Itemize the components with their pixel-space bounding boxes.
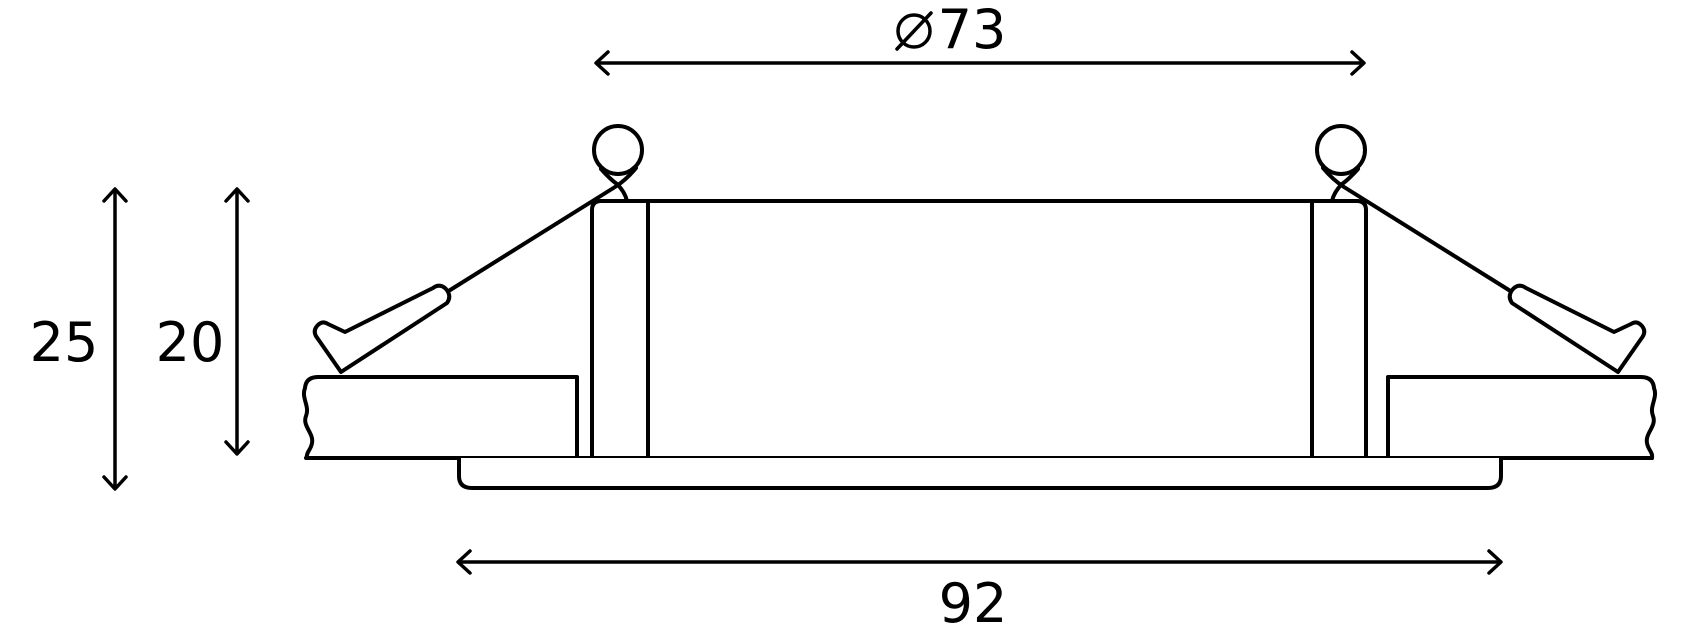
downlight-cross-section-drawing: 73 25 20 92 [0,0,1689,641]
spring-foot-right [1510,286,1645,372]
spring-foot-left [315,286,450,372]
dimension-height-outer: 25 [30,189,126,489]
dimension-height-outer-value: 25 [30,311,99,374]
dimension-width: 92 [458,551,1501,635]
dimension-height-inner: 20 [156,189,248,454]
ceiling-section-right [1388,377,1655,458]
dimension-diameter: 73 [596,0,1364,74]
diameter-icon [897,13,931,49]
technical-drawing-page: 73 25 20 92 [0,0,1689,641]
dimension-width-value: 92 [939,572,1008,635]
dimension-diameter-value: 73 [938,0,1007,61]
dimension-height-inner-value: 20 [156,311,225,374]
lamp-body [592,201,1366,458]
ceiling-section-left [304,377,577,458]
trim-ring [459,458,1501,488]
